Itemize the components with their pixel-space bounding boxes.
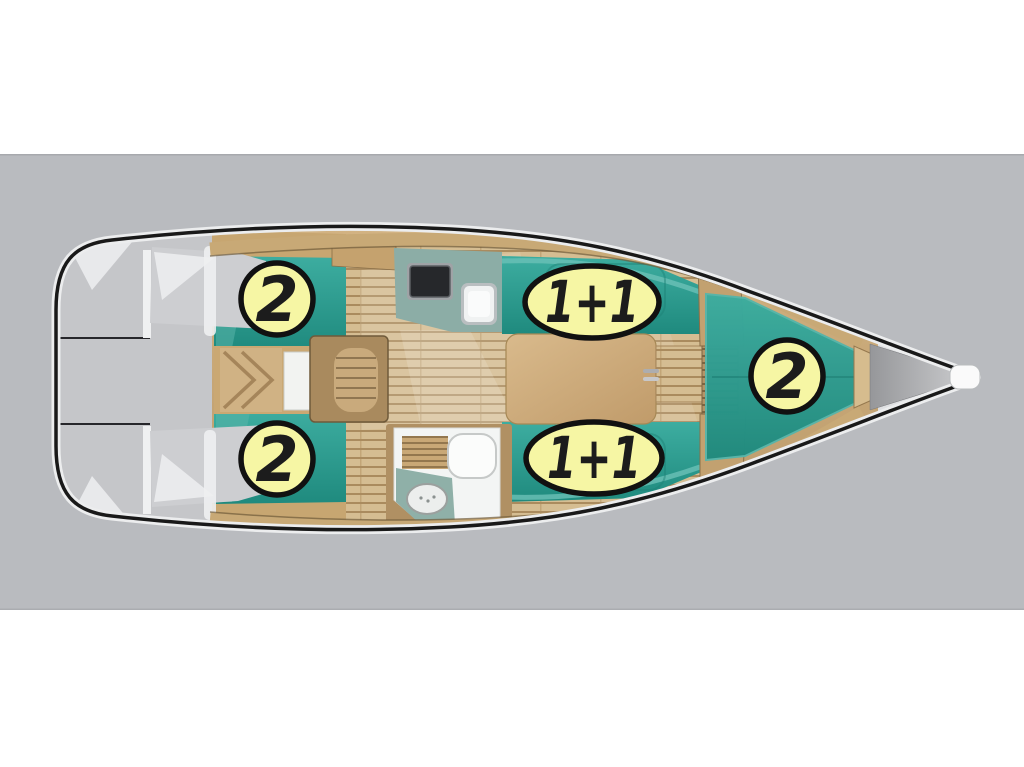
basin-fitting-1 — [419, 496, 422, 499]
badge-label: 1+1 — [545, 268, 639, 336]
cockpit-trim-port — [143, 250, 151, 338]
basin-fitting-3 — [432, 495, 435, 498]
badge-aft-cabin-starboard: 2 — [241, 423, 313, 496]
cabin-entry-trim-starboard — [204, 430, 216, 520]
bow-fitting — [950, 365, 980, 389]
table-side-slats — [656, 346, 704, 402]
berth-foot-trim — [854, 346, 872, 408]
badge-forward-cabin: 2 — [751, 340, 823, 413]
badge-label: 2 — [255, 263, 298, 336]
badge-aft-cabin-port: 2 — [241, 263, 313, 336]
wash-basin — [407, 484, 447, 514]
badge-label: 2 — [255, 423, 298, 496]
badge-saloon-settee-starboard: 1+1 — [526, 422, 662, 494]
sink-basin — [468, 291, 490, 317]
badge-label: 2 — [765, 340, 808, 413]
stove — [410, 266, 450, 297]
cockpit-trim-starboard — [143, 426, 151, 514]
saloon-table — [506, 334, 656, 424]
head-bathroom — [386, 424, 512, 530]
yacht-deck-plan-screenshot: 2 2 1+1 1+1 2 — [0, 0, 1024, 767]
basin-fitting-2 — [426, 499, 429, 502]
toilet — [448, 434, 496, 478]
cabin-door-panel — [284, 352, 312, 410]
table-fitting-1 — [643, 369, 659, 373]
band-bottom-edge — [0, 609, 1024, 611]
band-top-edge — [0, 154, 1024, 156]
shower-grate — [402, 436, 448, 469]
cabin-entry-trim-port — [204, 246, 216, 336]
badge-label: 1+1 — [547, 424, 641, 492]
badge-saloon-settee-port: 1+1 — [525, 266, 659, 338]
companionway — [214, 336, 388, 422]
yacht-deck-plan: 2 2 1+1 1+1 2 — [0, 0, 1024, 767]
table-fitting-2 — [643, 377, 659, 381]
